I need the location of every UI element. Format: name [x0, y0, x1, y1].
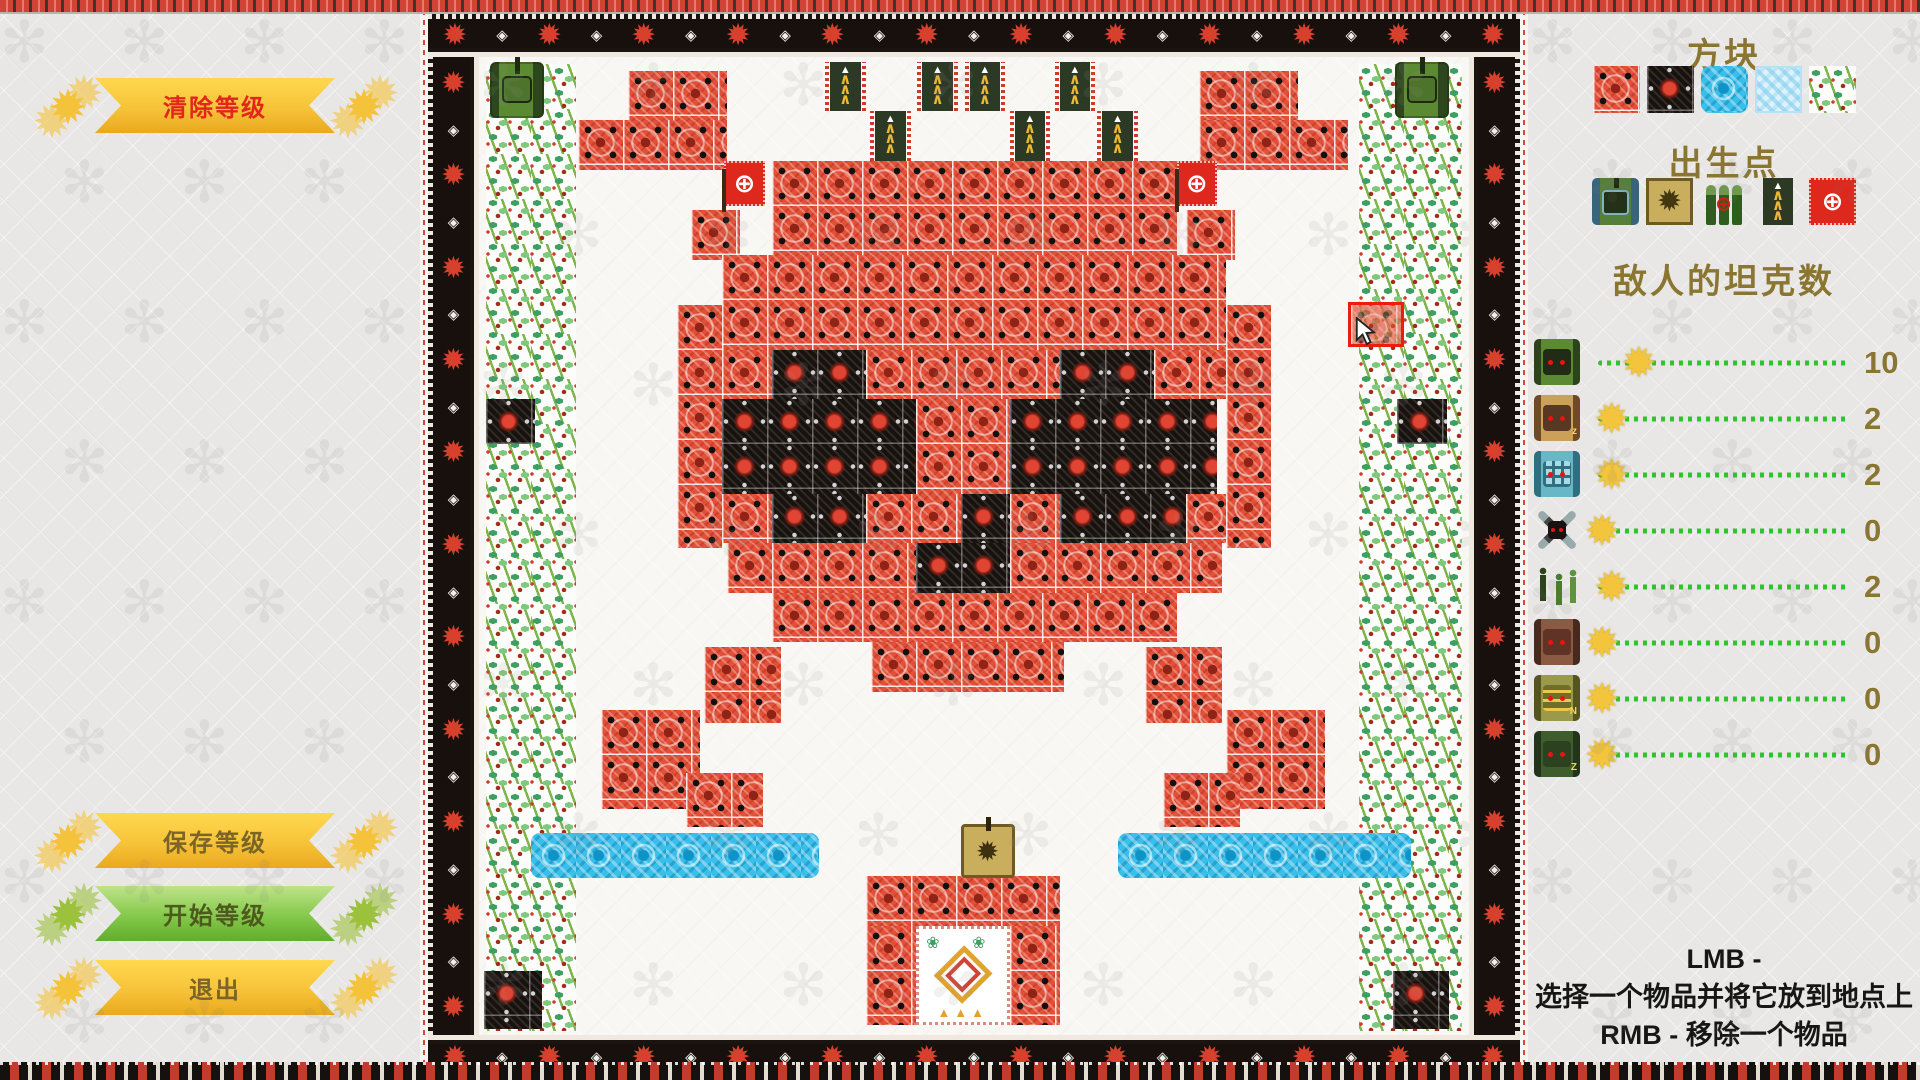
enemy-count-slider[interactable]: ✹: [1588, 735, 1860, 775]
map-tile-stone[interactable]: [961, 494, 1011, 544]
pixel-star-icon: [336, 962, 392, 1018]
border-star-icon: ✹: [1482, 901, 1507, 931]
border-star-icon: ✹: [441, 438, 466, 468]
snowflake-pattern: ✻: [360, 574, 409, 632]
snowflake-pattern: ✻: [1079, 957, 1128, 1015]
enemy-icon-slot: [1534, 451, 1584, 499]
map-tile-brick[interactable]: [601, 710, 700, 809]
slider-track: [1598, 753, 1850, 758]
border-star-icon: ✹: [442, 21, 467, 51]
border-diamond-icon: ◈: [1489, 123, 1501, 138]
pixel-star-icon: [40, 888, 96, 944]
map-tile-brick[interactable]: [686, 773, 763, 827]
slider-star-handle[interactable]: ✹: [1584, 510, 1619, 552]
map-border-left: ✹◈✹◈✹◈✹◈✹◈✹◈✹◈✹◈✹◈✹◈✹: [428, 57, 479, 1035]
snowflake-pattern: ✻: [1079, 657, 1128, 715]
map-enemy-banner-marker[interactable]: ▲∧∧∧: [1015, 111, 1046, 161]
border-star-icon: ✹: [1482, 531, 1507, 561]
clear-level-button[interactable]: 清除等级: [95, 78, 335, 133]
border-diamond-icon: ◈: [1489, 307, 1501, 322]
enemy-count-row: ✹10: [1534, 335, 1914, 391]
banner-chevron-icon: ∧: [979, 95, 991, 105]
border-diamond-icon: ◈: [448, 215, 460, 230]
slider-star-handle[interactable]: ✹: [1594, 566, 1629, 608]
border-star-icon: ✹: [441, 808, 466, 838]
snowflake-pattern: ✻: [300, 154, 349, 212]
snowflake-pattern: ✻: [1304, 207, 1353, 265]
enemy-count-value: 0: [1864, 625, 1914, 661]
snowflake-pattern: ✻: [0, 294, 49, 352]
snowflake-pattern: ✻: [779, 57, 828, 115]
border-diamond-icon: ◈: [448, 492, 460, 507]
help-line-2: 选择一个物品并将它放到地点上: [1528, 978, 1920, 1016]
border-star-icon: ✹: [1482, 254, 1507, 284]
map-tile-stone[interactable]: [1393, 971, 1449, 1030]
enemy-count-value: 0: [1864, 737, 1914, 773]
enemy-count-value: 2: [1864, 457, 1914, 493]
pixel-star-icon: [336, 815, 392, 871]
border-diamond-icon: ◈: [448, 123, 460, 138]
map-tile-brick[interactable]: [866, 494, 961, 544]
border-star-icon: ✹: [1292, 21, 1317, 51]
snowflake-pattern: ✻: [1304, 507, 1353, 565]
level-editor-screen: 清除等级 保存等级 开始等级 退出 ✻✻✻✻✻✻✻✻✻✻✻✻✻✻✻✻✻✻✻✻✻✻…: [0, 0, 1920, 1080]
border-diamond-icon: ◈: [1489, 677, 1501, 692]
map-area: ✹◈✹◈✹◈✹◈✹◈✹◈✹◈✹◈✹◈✹◈✹◈✹ ✹◈✹◈✹◈✹◈✹◈✹◈✹◈✹◈…: [428, 14, 1520, 1080]
map-tile-brick[interactable]: [1199, 71, 1298, 121]
enemy-count-slider[interactable]: ✹: [1588, 567, 1860, 607]
map-tile-brick[interactable]: [691, 210, 741, 260]
enemy-count-value: 10: [1864, 345, 1914, 381]
pixel-star-icon: [336, 80, 392, 136]
map-tile-brick[interactable]: [866, 926, 916, 1025]
snowflake-pattern: ✻: [0, 14, 49, 72]
map-tile-brick[interactable]: [677, 305, 722, 548]
banner-chevron-icon: ∧: [1024, 144, 1036, 154]
enemy-count-row: z✹2: [1534, 391, 1914, 447]
border-star-icon: ✹: [1482, 623, 1507, 653]
snowflake-pattern: ✻: [180, 714, 229, 772]
border-star-icon: ✹: [631, 21, 656, 51]
map-tile-trees[interactable]: [1359, 64, 1463, 1032]
border-diamond-icon: ◈: [1489, 492, 1501, 507]
block-palette: [1528, 66, 1920, 113]
slider-star-handle[interactable]: ✹: [1584, 734, 1619, 776]
border-diamond-icon: ◈: [779, 28, 791, 43]
enemy-icon-slot: N: [1534, 675, 1584, 723]
border-diamond-icon: ◈: [448, 769, 460, 784]
map-tile-brick[interactable]: [1199, 120, 1348, 170]
border-star-icon: ✹: [1197, 21, 1222, 51]
map-tile-stone[interactable]: [772, 494, 867, 544]
map-tile-brick[interactable]: [1186, 494, 1227, 544]
border-star-icon: ✹: [537, 21, 562, 51]
map-player-tank[interactable]: [1395, 62, 1449, 118]
left-map-divider: [420, 0, 428, 1080]
map-red-flag-marker[interactable]: ⊕: [1177, 161, 1218, 206]
help-line-3: RMB - 移除一个物品: [1528, 1016, 1920, 1054]
enemy-icon-slot: z: [1534, 395, 1584, 443]
border-star-icon: ✹: [1008, 21, 1033, 51]
flag-target-icon: ⊕: [734, 168, 756, 199]
map-tile-water[interactable]: [531, 833, 819, 878]
ammo-shell-icon: [1706, 185, 1716, 225]
map-border-right: ✹◈✹◈✹◈✹◈✹◈✹◈✹◈✹◈✹◈✹◈✹: [1469, 57, 1520, 1035]
map-tile-brick[interactable]: [1226, 710, 1325, 809]
slider-star-handle[interactable]: ✹: [1584, 622, 1619, 664]
border-star-icon: ✹: [441, 623, 466, 653]
border-star-icon: ✹: [441, 993, 466, 1023]
enemy-count-slider[interactable]: ✹: [1588, 455, 1860, 495]
enemy-icon-slot: [1534, 507, 1584, 555]
map-tile-brick[interactable]: [722, 350, 772, 400]
map-tile-brick[interactable]: [866, 350, 1060, 400]
map-tile-stone[interactable]: [1397, 399, 1447, 444]
enemy-count-row: ✹0: [1534, 615, 1914, 671]
start-level-button[interactable]: 开始等级: [95, 886, 335, 941]
map-tile-stone[interactable]: [1060, 494, 1186, 544]
border-diamond-icon: ◈: [685, 28, 697, 43]
border-star-icon: ✹: [1482, 69, 1507, 99]
border-diamond-icon: ◈: [448, 862, 460, 877]
border-diamond-icon: ◈: [448, 677, 460, 692]
snowflake-pattern: ✻: [360, 294, 409, 352]
border-diamond-icon: ◈: [1440, 28, 1452, 43]
pixel-star-icon: [40, 815, 96, 871]
snowflake-pattern: ✻: [240, 294, 289, 352]
slider-track: [1598, 473, 1850, 478]
palette-stone-block[interactable]: [1647, 66, 1694, 113]
map-tile-brick[interactable]: [1186, 210, 1236, 260]
snowflake-pattern: ✻: [360, 14, 409, 72]
palette-ammo-spawn[interactable]: [1700, 178, 1747, 225]
slider-star-handle[interactable]: ✹: [1594, 454, 1629, 496]
enemy-count-row: ✹0: [1534, 503, 1914, 559]
palette-water-block[interactable]: [1701, 66, 1748, 113]
slider-track: [1598, 529, 1850, 534]
border-star-icon: ✹: [820, 21, 845, 51]
border-diamond-icon: ◈: [1062, 28, 1074, 43]
slider-star-handle[interactable]: ✹: [1584, 678, 1619, 720]
infantry-icon: [1534, 563, 1580, 609]
border-star-icon: ✹: [1480, 21, 1505, 51]
map-tile-stone[interactable]: [772, 350, 867, 400]
snowflake-pattern: ✻: [60, 154, 109, 212]
border-star-icon: ✹: [1386, 21, 1411, 51]
tank-olive-icon: N: [1534, 675, 1580, 721]
border-diamond-icon: ◈: [1345, 28, 1357, 43]
slider-track: [1598, 641, 1850, 646]
enemy-icon-slot: [1534, 563, 1584, 611]
border-star-icon: ✹: [441, 346, 466, 376]
enemy-count-slider[interactable]: ✹: [1588, 623, 1860, 663]
palette-brick-block[interactable]: [1593, 66, 1640, 113]
map-tile-brick[interactable]: [772, 593, 1177, 643]
border-star-icon: ✹: [1482, 716, 1507, 746]
snowflake-pattern: ✻: [240, 14, 289, 72]
map-enemy-banner-marker[interactable]: ▲∧∧∧: [1060, 62, 1091, 112]
enemy-count-slider[interactable]: ✹: [1588, 511, 1860, 551]
snowflake-pattern: ✻: [1229, 957, 1278, 1015]
tank-green-z-icon: Z: [1534, 731, 1580, 777]
enemy-count-value: 0: [1864, 513, 1914, 549]
emblem-sprigs-icon: ❀ ❀: [919, 933, 1008, 953]
bottom-border-ornament: [0, 1062, 1920, 1080]
map-tile-stone[interactable]: [1010, 399, 1217, 494]
snowflake-pattern: ✻: [180, 434, 229, 492]
top-border-ornament: [0, 0, 1920, 14]
border-diamond-icon: ◈: [1489, 215, 1501, 230]
map-border-top: ✹◈✹◈✹◈✹◈✹◈✹◈✹◈✹◈✹◈✹◈✹◈✹: [428, 14, 1520, 57]
emblem-base-icon: ▲▲▲: [919, 1005, 1008, 1020]
map-player-tank[interactable]: [490, 62, 544, 118]
save-level-button[interactable]: 保存等级: [95, 813, 335, 868]
help-text: LMB - 选择一个物品并将它放到地点上 RMB - 移除一个物品: [1528, 940, 1920, 1054]
enemy-count-title: 敌人的坦克数: [1528, 254, 1920, 303]
enemy-count-row: N✹0: [1534, 671, 1914, 727]
snowflake-pattern: ✻: [300, 714, 349, 772]
enemy-count-value: 0: [1864, 681, 1914, 717]
border-star-icon: ✹: [441, 716, 466, 746]
slider-track: [1598, 697, 1850, 702]
enemy-count-value: 2: [1864, 401, 1914, 437]
snowflake-pattern: ✻: [1648, 854, 1697, 912]
map-tile-water[interactable]: [1118, 833, 1411, 878]
snowflake-pattern: ✻: [1528, 854, 1577, 912]
snowflake-pattern: ✻: [1229, 657, 1278, 715]
map-tile-brick[interactable]: [871, 642, 1065, 692]
border-star-icon: ✹: [725, 21, 750, 51]
flag-target-icon: ⊕: [1186, 168, 1208, 199]
tile-placement-preview[interactable]: [1348, 302, 1404, 347]
right-map-divider: [1520, 0, 1528, 1080]
slider-star-handle[interactable]: ✹: [1594, 398, 1629, 440]
snowflake-pattern: ✻: [629, 657, 678, 715]
palette-ice-block[interactable]: [1755, 66, 1802, 113]
spawn-palette: ▲∧∧∧: [1528, 178, 1920, 225]
map-tile-stone[interactable]: [722, 399, 916, 494]
enemy-count-slider[interactable]: ✹: [1588, 679, 1860, 719]
tank-blue-icon: [1534, 451, 1580, 497]
map-base-emblem[interactable]: ❀ ❀▲▲▲: [916, 926, 1011, 1025]
border-star-icon: ✹: [1482, 993, 1507, 1023]
snowflake-pattern: ✻: [180, 154, 229, 212]
map-enemy-banner-marker[interactable]: ▲∧∧∧: [830, 62, 861, 112]
map-tile-brick[interactable]: [916, 399, 1011, 494]
map-grid[interactable]: ▲∧∧∧▲∧∧∧▲∧∧∧▲∧∧∧▲∧∧∧▲∧∧∧▲∧∧∧⊕⊕❀ ❀▲▲▲✻✻✻✻…: [479, 57, 1469, 1035]
border-star-icon: ✹: [1482, 438, 1507, 468]
banner-chevron-icon: ∧: [1772, 211, 1784, 221]
help-line-1: LMB -: [1528, 940, 1920, 978]
border-star-icon: ✹: [1482, 346, 1507, 376]
border-diamond-icon: ◈: [968, 28, 980, 43]
border-diamond-icon: ◈: [1251, 28, 1263, 43]
map-enemy-banner-marker[interactable]: ▲∧∧∧: [1102, 111, 1133, 161]
map-red-flag-marker[interactable]: ⊕: [724, 161, 765, 206]
map-tile-brick[interactable]: [1226, 305, 1271, 548]
border-star-icon: ✹: [1482, 808, 1507, 838]
tank-mark-label: N: [1570, 706, 1577, 717]
pixel-star-icon: [40, 962, 96, 1018]
palette-trees-block[interactable]: [1809, 66, 1856, 113]
banner-chevron-icon: ∧: [1111, 144, 1123, 154]
snowflake-pattern: ✻: [779, 957, 828, 1015]
palette-player-tank-spawn[interactable]: [1592, 178, 1639, 225]
map-tile-brick[interactable]: [1010, 543, 1222, 593]
slider-star-handle[interactable]: ✹: [1621, 342, 1656, 384]
border-diamond-icon: ◈: [448, 400, 460, 415]
border-star-icon: ✹: [441, 69, 466, 99]
tank-basic-icon: [1534, 339, 1580, 385]
palette-enemy-banner-spawn[interactable]: ▲∧∧∧: [1763, 178, 1793, 225]
map-tile-brick[interactable]: [866, 876, 1060, 926]
enemy-count-row: ✹2: [1534, 559, 1914, 615]
map-tile-brick[interactable]: [727, 543, 916, 593]
palette-red-flag-spawn[interactable]: [1809, 178, 1856, 225]
enemy-icon-slot: [1534, 619, 1584, 667]
border-diamond-icon: ◈: [591, 28, 603, 43]
border-diamond-icon: ◈: [448, 585, 460, 600]
map-enemy-banner-marker[interactable]: ▲∧∧∧: [922, 62, 953, 112]
tank-mark-label: z: [1572, 426, 1577, 437]
tank-cat-icon: z: [1534, 395, 1580, 441]
map-tile-brick[interactable]: [772, 161, 1177, 256]
pixel-star-icon: [336, 888, 392, 944]
enemy-icon-slot: [1534, 339, 1584, 387]
map-tile-brick[interactable]: [722, 255, 1226, 350]
border-diamond-icon: ◈: [1489, 954, 1501, 969]
border-diamond-icon: ◈: [448, 307, 460, 322]
snowflake-pattern: ✻: [120, 14, 169, 72]
border-diamond-icon: ◈: [1489, 400, 1501, 415]
mouse-cursor-icon: [1353, 317, 1379, 347]
snowflake-pattern: ✻: [629, 957, 678, 1015]
exit-button[interactable]: 退出: [95, 960, 335, 1015]
map-tile-brick[interactable]: [628, 71, 727, 121]
map-enemy-banner-marker[interactable]: ▲∧∧∧: [970, 62, 1001, 112]
border-diamond-icon: ◈: [1489, 769, 1501, 784]
border-star-icon: ✹: [1103, 21, 1128, 51]
border-diamond-icon: ◈: [1489, 585, 1501, 600]
tank-mark-label: Z: [1571, 762, 1577, 773]
snowflake-pattern: ✻: [1768, 854, 1817, 912]
map-tile-brick[interactable]: [1154, 350, 1226, 400]
map-tile-stone[interactable]: [916, 543, 1011, 593]
map-tile-brick[interactable]: [578, 120, 727, 170]
snowflake-pattern: ✻: [120, 574, 169, 632]
snowflake-pattern: ✻: [629, 357, 678, 415]
banner-chevron-icon: ∧: [839, 95, 851, 105]
snowflake-pattern: ✻: [240, 574, 289, 632]
slider-track: [1598, 417, 1850, 422]
enemy-icon-slot: Z: [1534, 731, 1584, 779]
enemy-count-value: 2: [1864, 569, 1914, 605]
tank-bear-icon: [1534, 619, 1580, 665]
map-tile-trees[interactable]: [486, 64, 576, 1032]
border-star-icon: ✹: [441, 254, 466, 284]
enemy-count-list: ✹10z✹2✹2✹0✹2✹0N✹0Z✹0: [1534, 335, 1914, 783]
map-tile-brick[interactable]: [704, 647, 781, 724]
pixel-star-icon: [40, 80, 96, 136]
banner-chevron-icon: ∧: [931, 95, 943, 105]
map-enemy-banner-marker[interactable]: ▲∧∧∧: [875, 111, 906, 161]
left-panel: 清除等级 保存等级 开始等级 退出 ✻✻✻✻✻✻✻✻✻✻✻✻✻✻✻✻✻✻✻✻✻✻…: [0, 14, 420, 1062]
enemy-count-row: ✹2: [1534, 447, 1914, 503]
enemy-count-row: Z✹0: [1534, 727, 1914, 783]
palette-base-tank-spawn[interactable]: [1646, 178, 1693, 225]
drone-icon: [1534, 507, 1580, 553]
snowflake-pattern: ✻: [779, 657, 828, 715]
right-panel: 方块 出生点 ▲∧∧∧ 敌人的坦克数 ✹10z✹2✹2✹0✹2✹0N✹0Z✹0 …: [1528, 14, 1920, 1062]
snowflake-pattern: ✻: [300, 434, 349, 492]
border-diamond-icon: ◈: [1489, 862, 1501, 877]
map-base-tank-marker[interactable]: [961, 824, 1015, 878]
slider-track: [1598, 585, 1850, 590]
map-tile-brick[interactable]: [1010, 926, 1060, 1025]
banner-chevron-icon: ∧: [884, 144, 896, 154]
snowflake-pattern: ✻: [854, 807, 903, 865]
border-diamond-icon: ◈: [1157, 28, 1169, 43]
border-star-icon: ✹: [441, 531, 466, 561]
map-tile-brick[interactable]: [1010, 494, 1060, 544]
snowflake-pattern: ✻: [1888, 854, 1920, 912]
border-diamond-icon: ◈: [448, 954, 460, 969]
border-diamond-icon: ◈: [496, 28, 508, 43]
map-tile-brick[interactable]: [722, 494, 772, 544]
map-tile-stone[interactable]: [1060, 350, 1155, 400]
drone-body-icon: [1548, 521, 1566, 539]
border-star-icon: ✹: [441, 901, 466, 931]
map-tile-stone[interactable]: [486, 399, 536, 444]
map-tile-brick[interactable]: [1145, 647, 1222, 724]
border-star-icon: ✹: [1482, 161, 1507, 191]
enemy-count-slider[interactable]: ✹: [1588, 343, 1860, 383]
ammo-shell-icon: [1732, 185, 1742, 225]
map-tile-stone[interactable]: [484, 971, 543, 1030]
enemy-count-slider[interactable]: ✹: [1588, 399, 1860, 439]
border-star-icon: ✹: [914, 21, 939, 51]
snowflake-pattern: ✻: [60, 434, 109, 492]
banner-chevron-icon: ∧: [1069, 95, 1081, 105]
border-star-icon: ✹: [441, 161, 466, 191]
snowflake-pattern: ✻: [60, 714, 109, 772]
snowflake-pattern: ✻: [120, 294, 169, 352]
snowflake-pattern: ✻: [0, 574, 49, 632]
ammo-shell-icon: [1719, 185, 1729, 225]
map-tile-brick[interactable]: [1163, 773, 1240, 827]
border-diamond-icon: ◈: [874, 28, 886, 43]
